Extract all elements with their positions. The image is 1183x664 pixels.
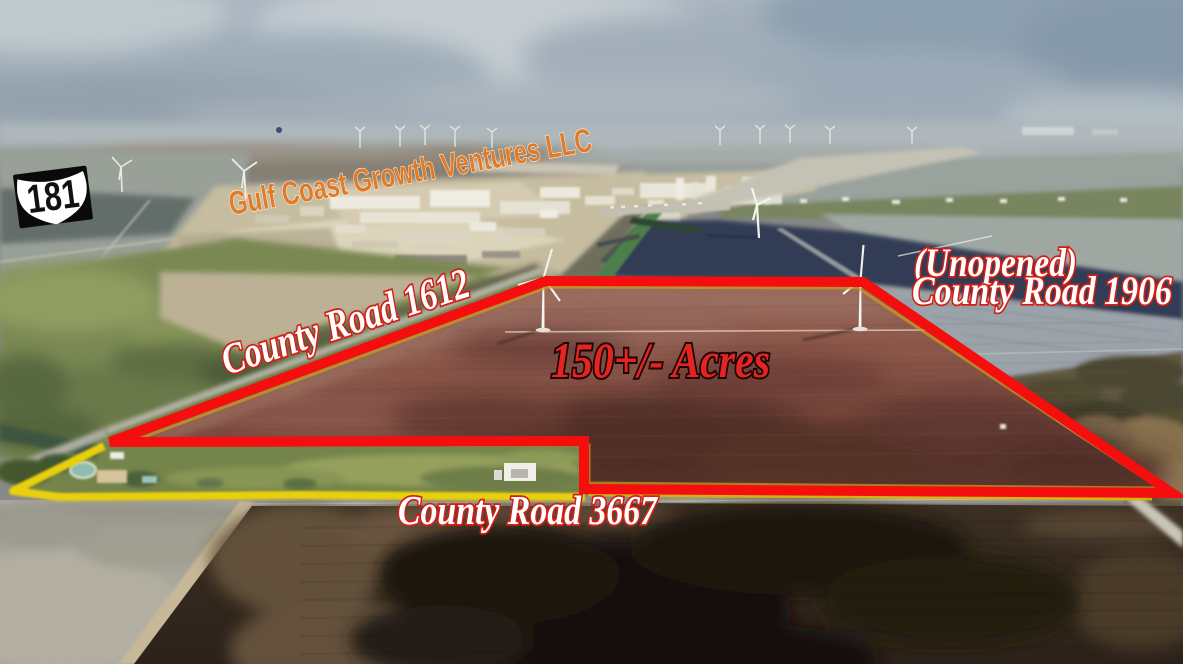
svg-text:County Road 1906: County Road 1906 (912, 268, 1172, 313)
svg-text:150+/- Acres: 150+/- Acres (551, 332, 770, 388)
svg-text:181: 181 (24, 172, 81, 222)
svg-text:County Road 3667: County Road 3667 (398, 487, 658, 533)
